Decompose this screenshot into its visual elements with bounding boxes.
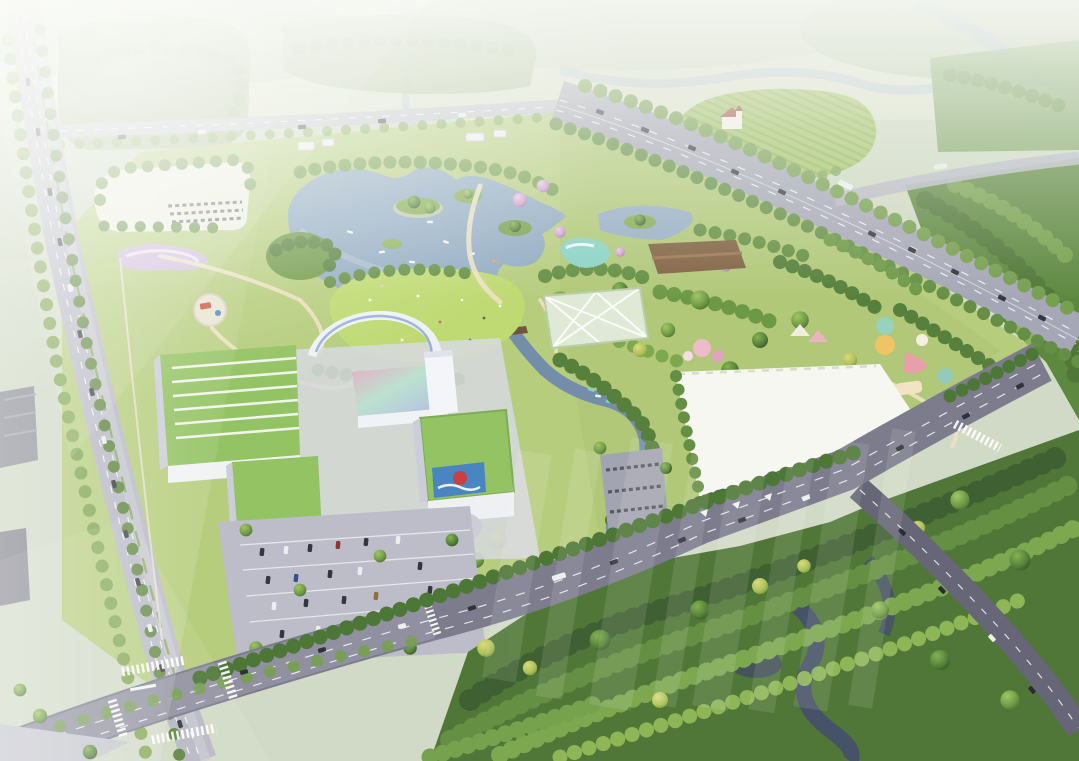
masterplan-scene [0,0,1079,761]
aerial-rendering-canvas [0,0,1079,761]
warm-light-wash [0,0,1079,761]
